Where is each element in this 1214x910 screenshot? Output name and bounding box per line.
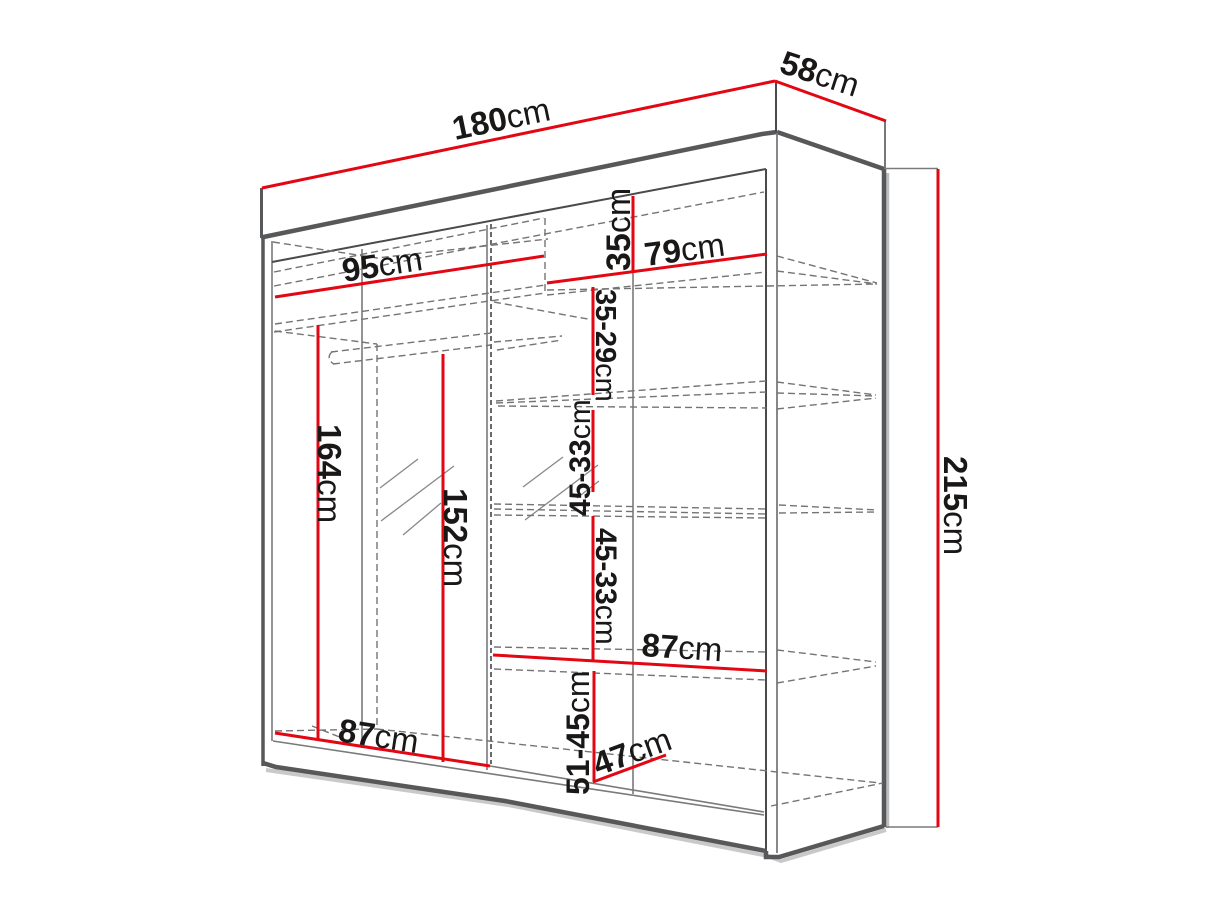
svg-text:45-33cm: 45-33cm	[564, 399, 597, 516]
svg-text:51-45cm: 51-45cm	[560, 671, 596, 796]
svg-text:35cm: 35cm	[600, 188, 638, 271]
svg-text:164cm: 164cm	[311, 424, 348, 523]
svg-text:35-29cm: 35-29cm	[589, 289, 621, 402]
svg-text:215cm: 215cm	[937, 456, 974, 555]
svg-text:45-33cm: 45-33cm	[589, 528, 622, 645]
svg-text:87cm: 87cm	[641, 626, 724, 668]
svg-text:152cm: 152cm	[437, 488, 474, 587]
